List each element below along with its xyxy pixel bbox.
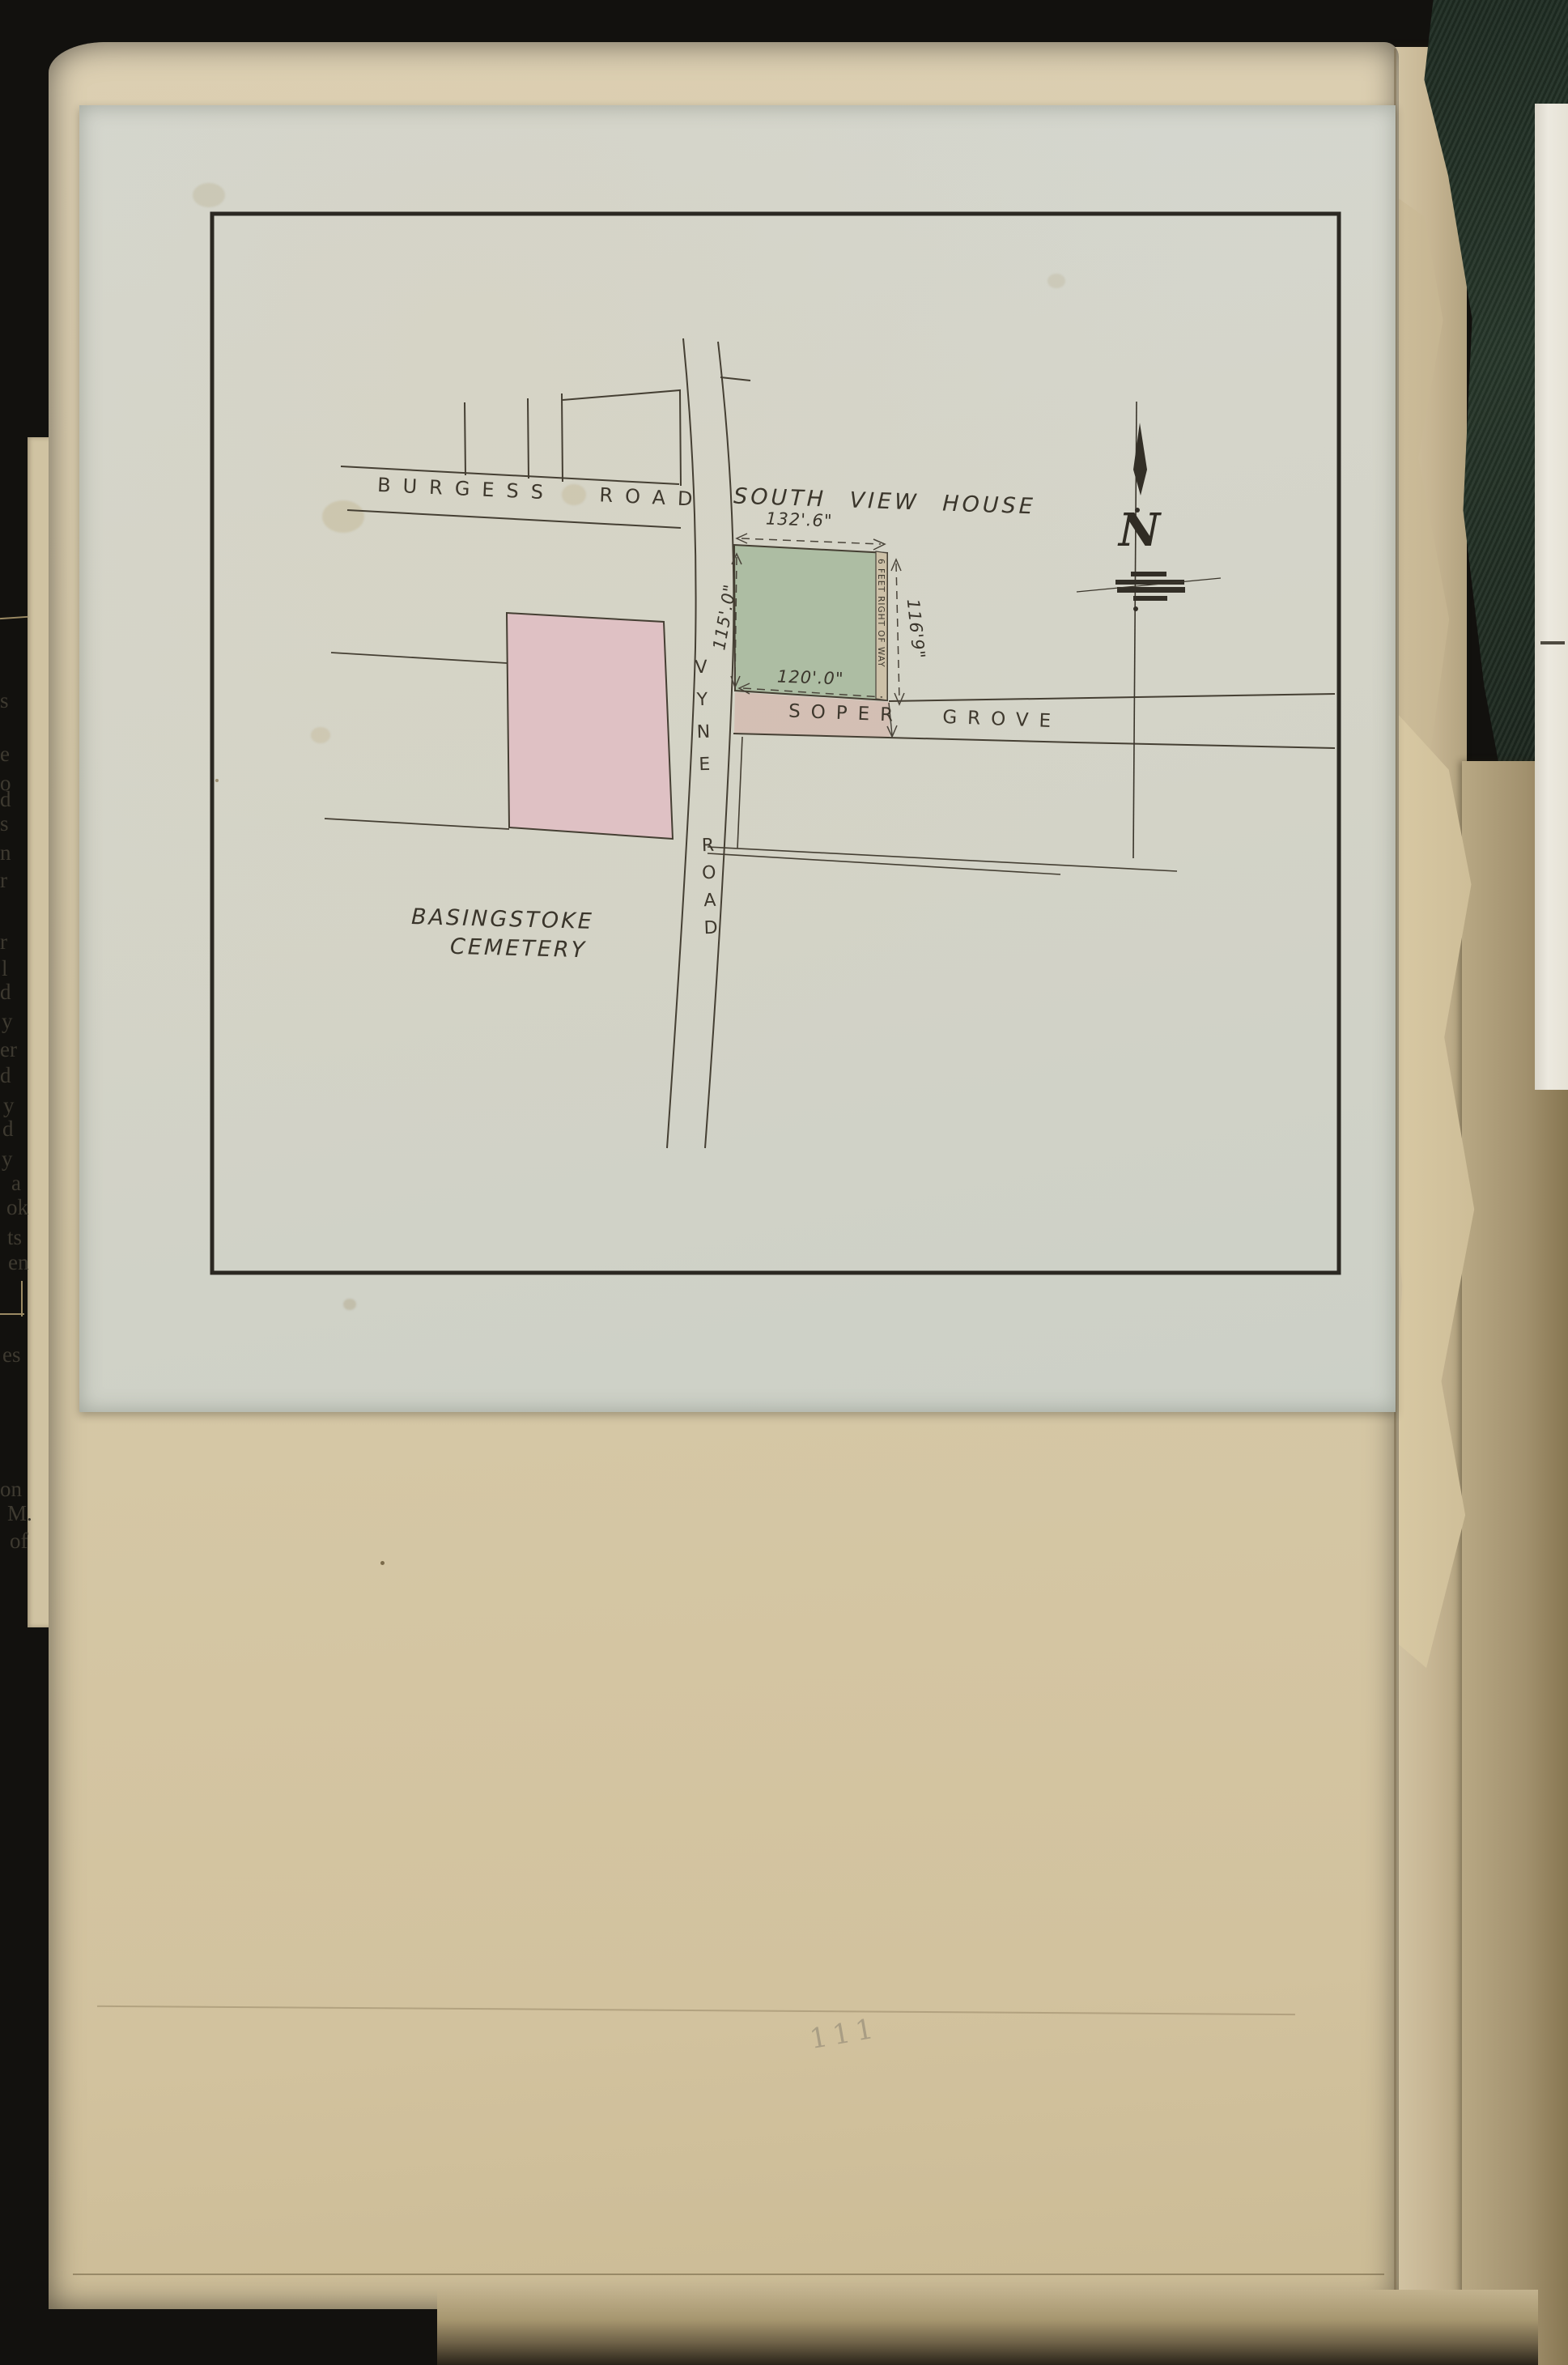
page-bottom-edges [437, 2290, 1538, 2365]
right-of-way-label: 6 FEET RIGHT OF WAY [876, 559, 886, 698]
margin-text-fragment: s [0, 688, 9, 713]
margin-text-fragment: r [0, 868, 7, 893]
burgess-road-east-stub [720, 377, 750, 381]
north-hatch-bar [1131, 572, 1166, 576]
dimension-bottom-label: 120'.0" [777, 667, 844, 689]
margin-text-fragment: of [10, 1529, 28, 1554]
plot-rectangle [563, 390, 681, 486]
plot-boundary-east-of-road [737, 737, 742, 849]
margin-text-fragment: n [0, 840, 11, 866]
scanned-book-page: seodsnrrldyerdydyaoktsenesonM.of 7576 [0, 0, 1568, 2365]
margin-text-fragment: y [2, 1009, 13, 1034]
north-indicator [1077, 402, 1221, 858]
loose-white-page-edge [1535, 104, 1568, 1090]
margin-text-fragment: en [8, 1250, 28, 1275]
soper-grove-north-edge [889, 694, 1335, 701]
soper-grove-south-edge [733, 734, 1335, 748]
margin-text-fragment: r [0, 929, 7, 955]
plan-drawing-area: BURGESS ROAD SOUTH VIEW HOUSE SOPER GROV… [209, 211, 1342, 1276]
north-indicator-dot [1133, 606, 1138, 611]
north-hatch-bar [1133, 596, 1167, 601]
dimension-top-label: 132'.6" [766, 509, 833, 531]
margin-text-fragment: l [2, 956, 8, 981]
margin-text-fragment: d [2, 1117, 14, 1142]
cemetery-boundary-lower [325, 819, 509, 829]
margin-text-fragment: ts [7, 1225, 22, 1250]
foxing-stain [343, 1299, 356, 1310]
cemetery-boundary-upper [331, 653, 507, 663]
margin-text-fragment: er [0, 1037, 17, 1062]
page-edge-mark [1540, 641, 1565, 644]
margin-text-fragment: y [3, 1093, 15, 1118]
plot-boundary-line [562, 393, 563, 482]
clipping-edge-line [21, 1281, 23, 1316]
margin-text-fragment: e [0, 742, 10, 767]
margin-text-fragment: d [0, 787, 11, 812]
page-bottom-edge-line [73, 2274, 1384, 2275]
left-margin-fragments: seodsnrrldyerdydyaoktsenesonM.of [0, 0, 65, 2365]
plot-boundary-line [465, 402, 465, 475]
vyne-road-west-edge [667, 338, 696, 1148]
margin-text-fragment: a [11, 1171, 21, 1196]
margin-text-fragment: es [2, 1342, 21, 1368]
dim-line-top [742, 538, 881, 544]
margin-text-fragment: s [0, 811, 9, 836]
margin-text-fragment: d [0, 980, 11, 1005]
margin-text-fragment: on [0, 1477, 22, 1502]
map-sheet-paper: BURGESS ROAD SOUTH VIEW HOUSE SOPER GROV… [79, 105, 1396, 1412]
foxing-stain [193, 183, 225, 207]
north-letter: N [1119, 504, 1160, 557]
ink-speck [380, 1561, 385, 1565]
ink-speck [215, 779, 219, 782]
margin-text-fragment: y [2, 1146, 13, 1172]
plan-linework [209, 211, 1342, 1276]
basingstoke-cemetery-label-line1: BASINGSTOKE [411, 904, 595, 934]
vyne-road-label-lower: ROAD [698, 836, 722, 946]
clipping-edge-line [0, 1313, 24, 1315]
pink-plot-cemetery-parcel [507, 613, 673, 839]
margin-text-fragment: M. [7, 1501, 32, 1526]
north-hatch-bar [1117, 587, 1185, 593]
dim-line-right [896, 564, 899, 700]
margin-text-fragment: d [0, 1063, 11, 1088]
burgess-road-south-edge [347, 510, 681, 528]
margin-text-fragment: ok [6, 1195, 28, 1220]
plot-boundary-line [528, 398, 529, 479]
plan-border [212, 214, 1339, 1273]
basingstoke-cemetery-label-line2: CEMETERY [450, 934, 588, 963]
